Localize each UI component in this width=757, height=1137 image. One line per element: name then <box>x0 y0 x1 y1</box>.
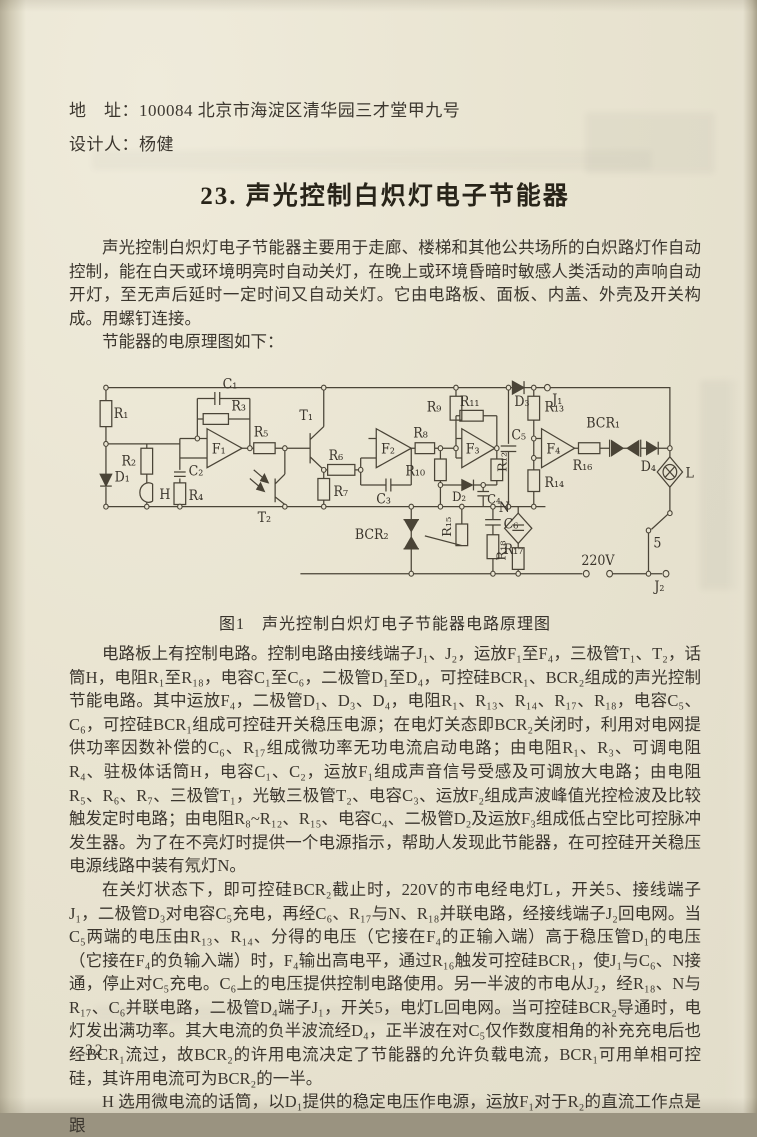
label-r4: R₄ <box>189 489 204 505</box>
label-r16: R₁₆ <box>573 458 593 474</box>
junction-nodes <box>104 384 672 577</box>
circuit-diagram: R₁ R₂ D₁ H C₂ R₄ C₁ R₃ F₁ R₅ T₁ T₂ R₆ R₇… <box>69 366 701 604</box>
label-r1: R₁ <box>114 406 129 422</box>
circuit-description-paragraph: 电路板上有控制电路。控制电路由接线端子J₁、J₂，运放F₁至F₄，三极管T₁、T… <box>69 642 701 878</box>
label-j1: J₁ <box>550 392 562 408</box>
circuit-figure: R₁ R₂ D₁ H C₂ R₄ C₁ R₃ F₁ R₅ T₁ T₂ R₆ R₇… <box>69 366 701 634</box>
label-j2: J₂ <box>652 579 664 595</box>
label-r18: R₁₈ <box>495 540 508 560</box>
book-page: 地 址：100084 北京市海淀区清华园三才堂甲九号 设计人：杨健 23. 声光… <box>0 0 757 1113</box>
label-bcr2: BCR₂ <box>355 527 389 543</box>
label-d2: D₂ <box>452 490 466 505</box>
microphone-symbol <box>140 483 153 502</box>
label-t1: T₁ <box>299 408 313 424</box>
label-r15: R₁₅ <box>441 517 454 537</box>
label-f3: F₃ <box>466 442 480 458</box>
label-c2: C₂ <box>189 464 204 480</box>
intro-paragraph: 声光控制白炽灯电子节能器主要用于走廊、楼梯和其他公共场所的白炽路灯作自动控制，能… <box>69 236 701 330</box>
label-r14: R₁₄ <box>544 476 564 492</box>
resistor-symbols <box>100 396 600 569</box>
label-f2: F₂ <box>381 442 395 458</box>
page-spine-shadow <box>0 0 26 1113</box>
label-r11: R₁₁ <box>460 394 480 410</box>
label-f4: F₄ <box>546 442 560 458</box>
chapter-title: 23. 声光控制白炽灯电子节能器 <box>69 176 701 212</box>
page-number: · 32 · <box>72 1042 118 1060</box>
label-n: N <box>499 500 510 516</box>
label-r5: R₅ <box>254 425 269 441</box>
page-edge-bottom <box>0 1097 757 1113</box>
capacitor-symbols <box>174 392 516 525</box>
address-line: 地 址：100084 北京市海淀区清华园三才堂甲九号 <box>69 94 701 128</box>
page-edge-top <box>0 0 757 12</box>
label-c1: C₁ <box>223 377 238 393</box>
label-d4: D₄ <box>641 459 656 475</box>
label-c6: C₆ <box>504 517 519 533</box>
label-switch-5: 5 <box>653 536 661 552</box>
label-t2: T₂ <box>258 510 272 526</box>
label-r3: R₃ <box>231 399 246 415</box>
triac-bcr1-symbol <box>610 440 641 457</box>
label-r6: R₆ <box>329 449 344 465</box>
label-r7: R₇ <box>333 484 348 500</box>
figure-caption: 图1 声光控制白炽灯电子节能器电路原理图 <box>69 610 701 634</box>
component-labels: R₁ R₂ D₁ H C₂ R₄ C₁ R₃ F₁ R₅ T₁ T₂ R₆ R₇… <box>114 377 694 595</box>
triac-bcr2-symbol <box>403 520 419 549</box>
label-r12: R₁₂ <box>496 452 509 472</box>
label-d1: D₁ <box>115 470 130 486</box>
lamp-symbol <box>657 457 682 487</box>
label-c5: C₅ <box>511 428 526 444</box>
phototransistor-arrows <box>257 474 269 491</box>
label-r2: R₂ <box>122 454 137 470</box>
label-h: H <box>159 487 170 503</box>
designer-line: 设计人：杨健 <box>69 128 701 162</box>
label-220v: 220V <box>581 553 615 569</box>
label-c3: C₃ <box>376 492 391 508</box>
label-bcr1: BCR₁ <box>586 416 620 432</box>
page-content: 地 址：100084 北京市海淀区清华园三才堂甲九号 设计人：杨健 23. 声光… <box>69 94 701 1137</box>
page-edge-right <box>725 0 757 1113</box>
label-r10: R₁₀ <box>405 464 425 480</box>
label-r8: R₈ <box>413 426 428 442</box>
label-f1: F₁ <box>212 442 226 458</box>
label-r9: R₉ <box>427 400 442 416</box>
operation-paragraph: 在关灯状态下，即可控硅BCR₂截止时，220V的市电经电灯L，开关5、接线端子J… <box>69 878 701 1090</box>
label-d3: D₃ <box>514 394 529 410</box>
label-l: L <box>685 466 694 482</box>
lead-in-line: 节能器的电原理图如下： <box>69 330 701 354</box>
